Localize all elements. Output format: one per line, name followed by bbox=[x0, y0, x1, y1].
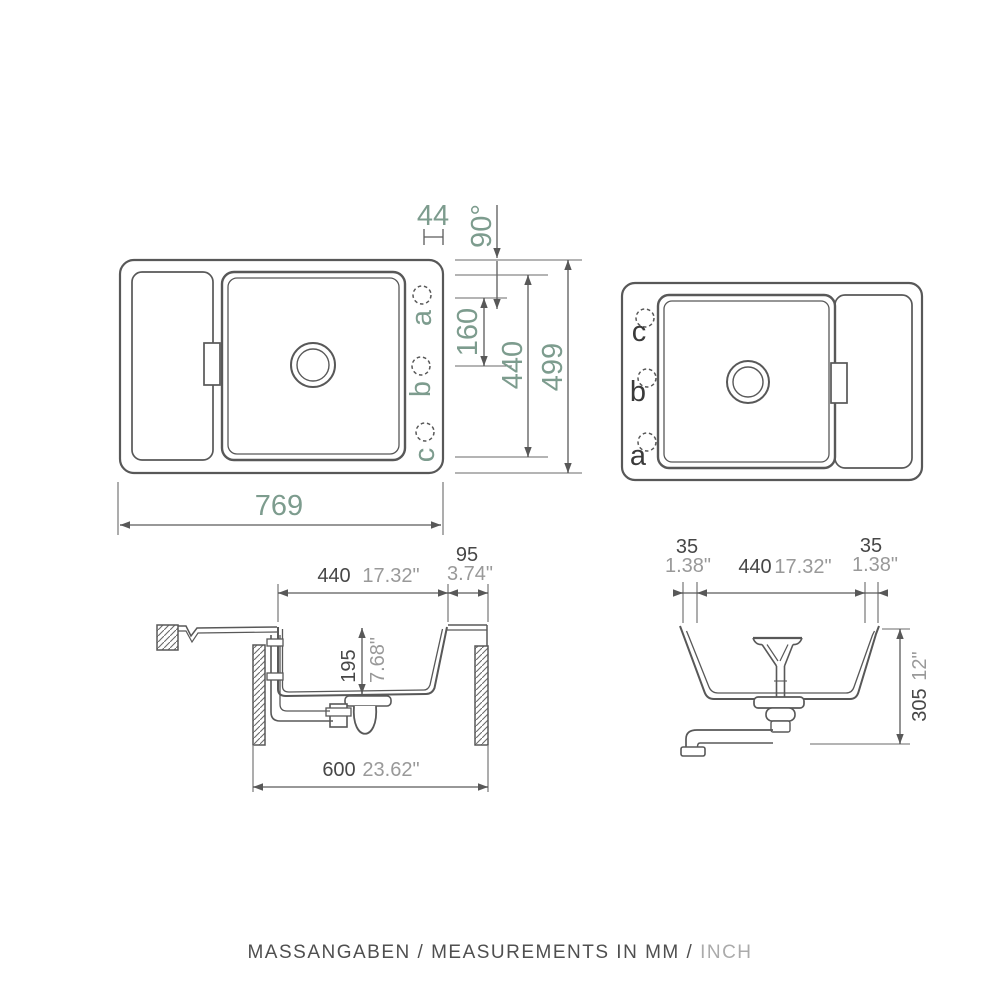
drain-hole bbox=[291, 343, 335, 387]
dim-bowl-length-440: 440 bbox=[497, 341, 529, 389]
tap-hole-b bbox=[412, 357, 430, 375]
main-bowl bbox=[222, 272, 405, 460]
hole-label-c: c bbox=[409, 448, 441, 463]
caption: MASSANGABEN / MEASUREMENTS IN MM / INCH bbox=[0, 942, 1000, 964]
waste-assembly bbox=[681, 697, 804, 756]
front-section-view: 35 1.38" 440 17.32" 35 1.38" 305 12" bbox=[640, 535, 950, 805]
dim-right-clearance-in: 1.38" bbox=[852, 554, 898, 576]
dim-bowl-width-mm: 440 bbox=[317, 565, 350, 587]
sink-dimension-sheet: a b c 44 90° 160 bbox=[0, 0, 1000, 1000]
drainboard bbox=[132, 272, 213, 460]
drain-flange bbox=[754, 697, 804, 708]
dim-cabinet-in: 23.62" bbox=[362, 759, 419, 781]
dim-bowl-width-in: 17.32" bbox=[774, 556, 831, 578]
dim-hole-spacing-160: 160 bbox=[452, 308, 484, 356]
dim-hole-offset-44: 44 bbox=[417, 200, 449, 232]
cabinet-wall-left bbox=[253, 645, 265, 745]
dim-overall-width-769: 769 bbox=[255, 490, 303, 522]
caption-inch: INCH bbox=[700, 942, 752, 963]
tap-hole-a bbox=[413, 286, 431, 304]
drain-bracket bbox=[753, 638, 802, 697]
divider-tab bbox=[204, 343, 220, 385]
front-section-drawing bbox=[680, 626, 879, 756]
dim-overall-depth-499: 499 bbox=[537, 343, 569, 391]
tap-holes: c b a bbox=[630, 309, 656, 472]
tap-holes: a b c bbox=[405, 286, 441, 462]
sink-outline-top-left: a b c bbox=[120, 260, 443, 473]
dim-install-height-in: 12" bbox=[909, 651, 931, 680]
caption-measurements-mm: MASSANGABEN / MEASUREMENTS IN MM / bbox=[247, 942, 700, 963]
hole-label-b: b bbox=[405, 381, 437, 397]
drain-hole bbox=[727, 361, 769, 403]
dim-install-height-mm: 305 bbox=[909, 688, 931, 721]
hole-label-b: b bbox=[630, 376, 646, 408]
drain-flange bbox=[345, 696, 391, 706]
side-section-view: 440 17.32" 95 3.74" 195 7.68" 600 bbox=[110, 540, 530, 802]
side-section-drawing bbox=[157, 625, 488, 745]
tap-hole-c bbox=[416, 423, 434, 441]
hole-label-a: a bbox=[406, 309, 438, 326]
dim-bowl-depth-mm: 195 bbox=[338, 649, 360, 682]
countertop-edge bbox=[157, 625, 178, 650]
dimension-annotations-side-section: 440 17.32" 95 3.74" 195 7.68" 600 bbox=[253, 544, 493, 792]
dim-rim-in: 3.74" bbox=[447, 563, 493, 585]
trap-bulb bbox=[766, 708, 795, 721]
dim-bowl-width-in: 17.32" bbox=[362, 565, 419, 587]
hole-label-c: c bbox=[632, 316, 647, 348]
dim-left-clearance-in: 1.38" bbox=[665, 555, 711, 577]
trap-bulb bbox=[354, 706, 376, 734]
dimension-annotations-front-section: 35 1.38" 440 17.32" 35 1.38" 305 12" bbox=[665, 535, 931, 744]
cabinet-wall-right bbox=[475, 646, 488, 745]
divider-tab bbox=[831, 363, 847, 403]
dim-corner-angle-90: 90° bbox=[466, 204, 498, 248]
sink-outline-top-right: c b a bbox=[622, 283, 922, 480]
top-view-right: c b a bbox=[605, 275, 940, 490]
pipe-outlet-flange bbox=[681, 747, 705, 756]
dim-bowl-width-mm: 440 bbox=[738, 556, 771, 578]
dim-bowl-depth-in: 7.68" bbox=[367, 637, 389, 683]
dimension-annotations-top-left: 44 90° 160 440 bbox=[118, 200, 582, 535]
top-view-left: a b c 44 90° 160 bbox=[100, 195, 595, 540]
hole-label-a: a bbox=[630, 440, 647, 472]
dim-cabinet-mm: 600 bbox=[322, 759, 355, 781]
main-bowl bbox=[658, 295, 835, 468]
